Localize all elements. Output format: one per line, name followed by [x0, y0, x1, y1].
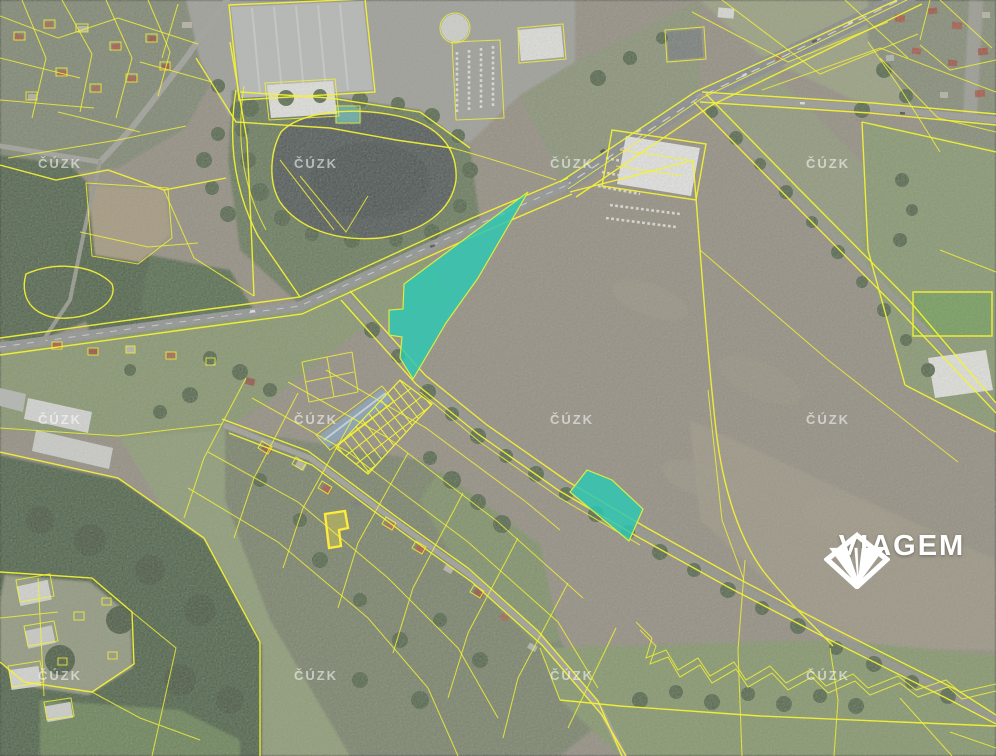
cuzk-watermark: ČÚZK — [550, 412, 594, 427]
cuzk-watermark: ČÚZK — [294, 668, 338, 683]
image-grain — [0, 0, 996, 756]
cuzk-watermark: ČÚZK — [550, 668, 594, 683]
cuzk-watermark: ČÚZK — [38, 668, 82, 683]
satellite-map-layer: ČÚZKČÚZKČÚZKČÚZKČÚZKČÚZKČÚZKČÚZKČÚZKČÚZK… — [0, 0, 996, 756]
map-canvas[interactable]: ČÚZKČÚZKČÚZKČÚZKČÚZKČÚZKČÚZKČÚZKČÚZKČÚZK… — [0, 0, 996, 756]
cuzk-watermark: ČÚZK — [550, 156, 594, 171]
cuzk-watermark: ČÚZK — [806, 668, 850, 683]
cuzk-watermark: ČÚZK — [294, 412, 338, 427]
cuzk-watermark: ČÚZK — [38, 156, 82, 171]
cuzk-watermark: ČÚZK — [38, 412, 82, 427]
cuzk-watermark: ČÚZK — [294, 156, 338, 171]
cuzk-watermark: ČÚZK — [806, 412, 850, 427]
cuzk-watermark: ČÚZK — [806, 156, 850, 171]
